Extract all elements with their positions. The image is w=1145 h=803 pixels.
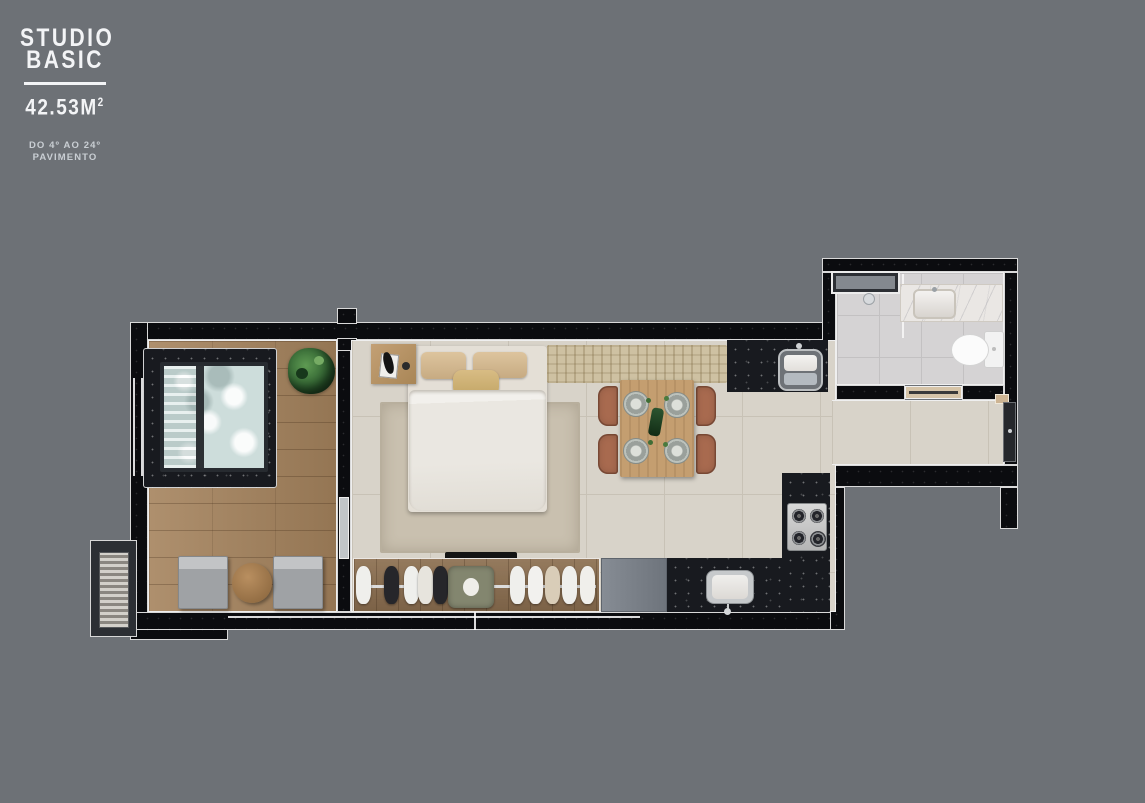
- floor-plan: [0, 0, 1145, 803]
- garnish-3: [648, 440, 653, 445]
- cooktop-burner-2: [810, 509, 824, 523]
- entry-door: [1003, 402, 1016, 462]
- garnish-1: [646, 398, 651, 403]
- kitchen-sink-basin: [784, 355, 817, 371]
- left-wall-window-line-2: [141, 378, 143, 476]
- wall-bathroom-divider-left: [836, 385, 905, 400]
- lounge-chair-1: [178, 556, 228, 609]
- corridor-floor: [832, 400, 1004, 465]
- potted-plant: [288, 348, 335, 394]
- pool-steps: [164, 366, 196, 468]
- garment-white-3: [418, 566, 433, 604]
- place-setting-3: [623, 438, 649, 464]
- toilet-flush-button: [992, 347, 996, 351]
- garment-dark-2: [433, 566, 448, 604]
- studio-basic-floor-plan-page: STUDIO BASIC 42.53M2 DO 4º AO 24º PAVIME…: [0, 0, 1145, 803]
- wall-top: [130, 322, 830, 340]
- wall-terrace-divider: [337, 350, 351, 612]
- wall-stub-right: [1000, 487, 1018, 529]
- ac-condenser: [99, 552, 129, 628]
- wall-column-top: [337, 308, 357, 324]
- plant-leaf-dark: [296, 368, 308, 379]
- plunge-pool: [160, 362, 268, 472]
- left-wall-window-line-1: [133, 378, 135, 476]
- bathroom-window: [831, 271, 900, 294]
- kitchen-sink: [778, 349, 823, 391]
- dining-chair-bottom-left: [598, 434, 618, 474]
- bottom-wall-window-line: [228, 616, 640, 618]
- garment-white-6: [562, 566, 577, 604]
- bed-duvet: [409, 390, 546, 511]
- garment-white-4: [510, 566, 525, 604]
- place-setting-1: [623, 391, 649, 417]
- garnish-4: [663, 442, 668, 447]
- lounge-chair-2: [273, 556, 323, 609]
- terrace-sliding-door: [339, 497, 349, 559]
- plant-leaf-light: [314, 356, 324, 365]
- cooktop-burner-4: [810, 531, 826, 547]
- dining-chair-top-right: [696, 386, 716, 426]
- garment-white-1: [356, 566, 371, 604]
- kitchen-sink-faucet: [796, 343, 802, 349]
- toilet-bowl: [951, 334, 989, 366]
- wall-bathroom-top: [822, 258, 1018, 272]
- nightstand-decor-ball: [402, 362, 410, 370]
- garnish-2: [664, 396, 669, 401]
- vanity-faucet: [932, 287, 937, 292]
- bathroom-door-leaf: [909, 391, 958, 394]
- dining-chair-top-left: [598, 386, 618, 426]
- cooktop-burner-1: [792, 509, 806, 523]
- shower-head: [863, 293, 875, 305]
- wall-bottom: [130, 612, 845, 630]
- place-setting-4: [664, 438, 690, 464]
- garment-white-7: [580, 566, 595, 604]
- garment-white-2: [404, 566, 419, 604]
- bathroom-door-threshold: [905, 386, 962, 399]
- side-table: [232, 563, 272, 603]
- wall-corridor-bottom: [830, 465, 1018, 487]
- dining-chair-bottom-right: [696, 434, 716, 474]
- entry-door-handle: [1008, 429, 1012, 433]
- pool-step-divider: [196, 366, 204, 468]
- ac-ledge: [90, 540, 137, 637]
- prep-sink-faucet: [724, 608, 731, 615]
- prep-sink: [706, 570, 754, 604]
- garment-tan: [545, 566, 560, 604]
- kitchen-sink-drainboard: [784, 373, 817, 385]
- armchair-cushion: [463, 578, 479, 596]
- armchair: [448, 566, 494, 608]
- vanity-basin: [913, 289, 956, 319]
- gas-cooktop: [787, 503, 827, 551]
- garment-dark-1: [384, 566, 399, 604]
- bottom-wall-joint: [474, 612, 476, 630]
- cooktop-burner-3: [792, 531, 806, 545]
- prep-sink-basin: [712, 575, 748, 599]
- refrigerator: [601, 558, 667, 612]
- rattan-bench: [547, 345, 727, 383]
- nightstand: [371, 344, 416, 384]
- garment-white-5: [528, 566, 543, 604]
